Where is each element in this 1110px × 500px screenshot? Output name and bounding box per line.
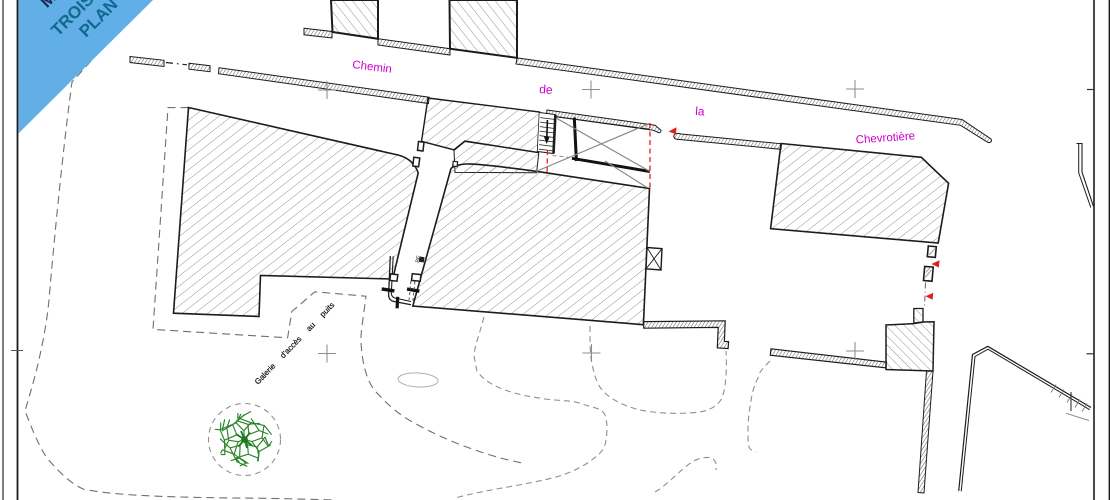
svg-text:de: de — [539, 82, 554, 97]
svg-text:la: la — [695, 104, 706, 119]
